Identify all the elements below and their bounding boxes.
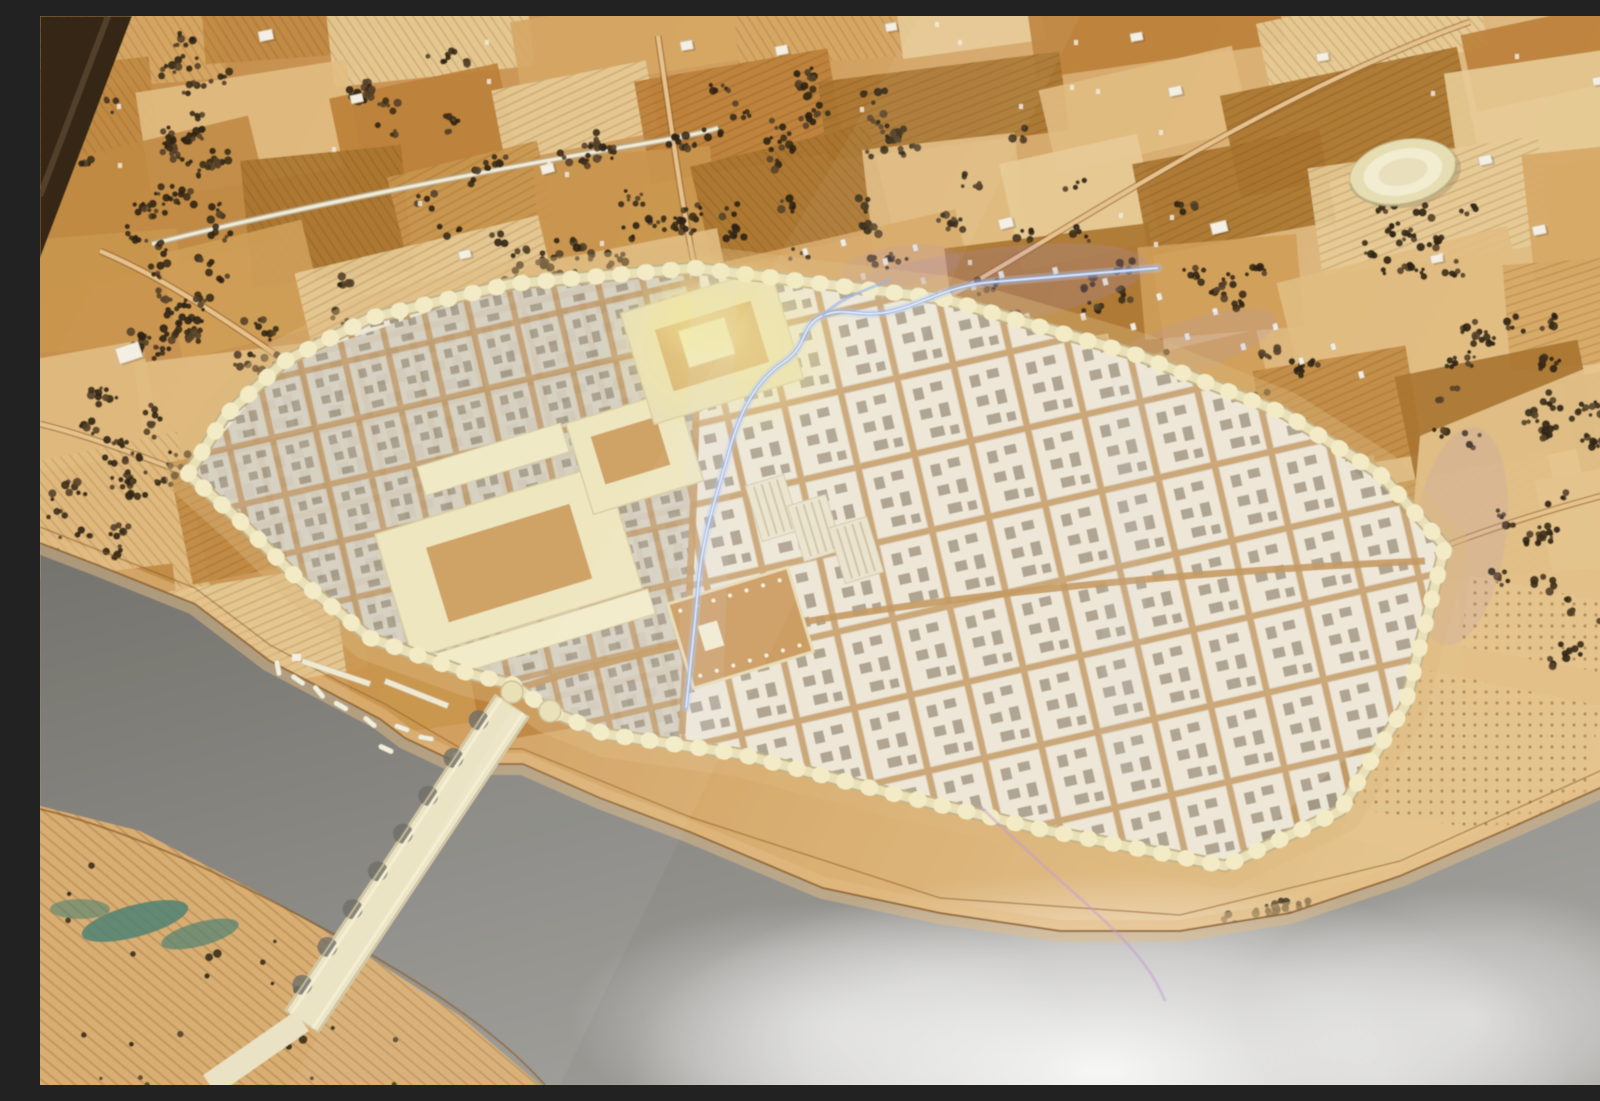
museum-model-photo <box>40 16 1600 1085</box>
model-scene <box>40 16 1600 1085</box>
model-photo-svg <box>40 16 1600 1085</box>
